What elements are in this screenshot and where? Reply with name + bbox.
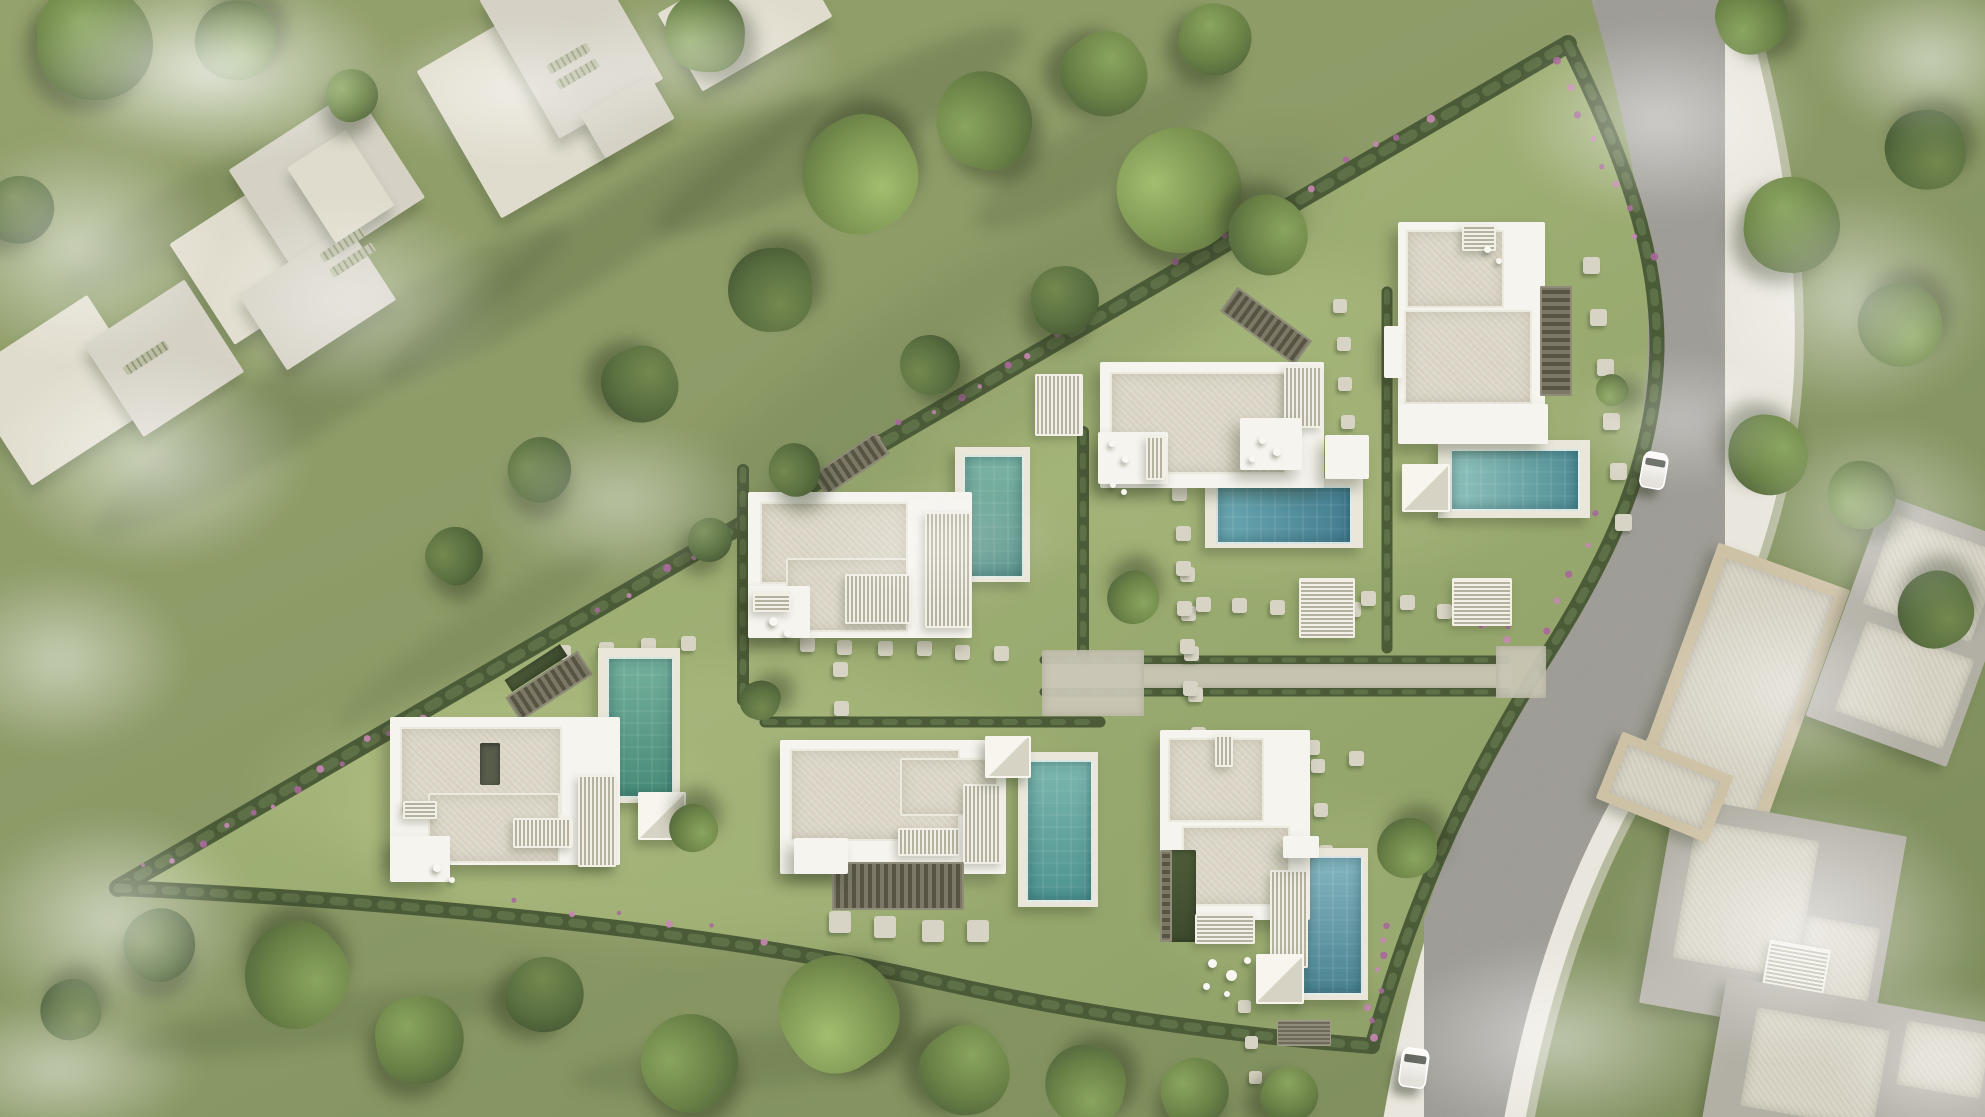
stepping-stone bbox=[1603, 413, 1620, 430]
bougainvillea-flowers bbox=[761, 939, 768, 946]
villa-1-part-6 bbox=[1540, 286, 1572, 396]
outdoor-furniture bbox=[1226, 970, 1237, 981]
bougainvillea-flowers bbox=[1554, 597, 1561, 604]
pool-3 bbox=[963, 455, 1024, 578]
villa-4-part-7 bbox=[403, 801, 437, 819]
paved-path bbox=[1042, 650, 1144, 716]
bougainvillea-flowers bbox=[569, 911, 575, 917]
bougainvillea-flowers bbox=[709, 923, 713, 927]
villa-4-part-6 bbox=[390, 836, 450, 882]
outdoor-furniture bbox=[1109, 441, 1115, 447]
aerial-site-plan-rendering bbox=[0, 0, 1985, 1117]
stepping-stone bbox=[681, 636, 696, 651]
bougainvillea-flowers bbox=[271, 804, 276, 809]
stepping-stone bbox=[1400, 595, 1415, 610]
villa-6-part-10 bbox=[1256, 954, 1304, 1004]
villa-5-part-7 bbox=[985, 736, 1031, 778]
stepping-stone bbox=[994, 646, 1009, 661]
stepping-stone bbox=[874, 916, 896, 938]
villa-5-part-8 bbox=[794, 838, 848, 874]
bougainvillea-flowers bbox=[1592, 510, 1598, 516]
stepping-stone bbox=[1245, 1036, 1258, 1049]
bougainvillea-flowers bbox=[340, 761, 345, 766]
outdoor-furniture bbox=[1110, 482, 1116, 488]
outdoor-furniture bbox=[1121, 489, 1127, 495]
bougainvillea-flowers bbox=[627, 593, 632, 598]
outdoor-furniture bbox=[1203, 983, 1210, 990]
bougainvillea-flowers bbox=[141, 863, 145, 867]
stepping-stone bbox=[1180, 639, 1195, 654]
bougainvillea-flowers bbox=[1369, 1018, 1375, 1024]
bougainvillea-flowers bbox=[978, 384, 982, 388]
stepping-stone bbox=[917, 641, 932, 656]
stepping-stone bbox=[1437, 604, 1452, 619]
bougainvillea-flowers bbox=[364, 735, 371, 742]
villa-5-part-4 bbox=[898, 828, 960, 856]
bougainvillea-flowers bbox=[200, 841, 207, 848]
villa-6-part-11 bbox=[1277, 1020, 1331, 1046]
car-2 bbox=[1397, 1046, 1430, 1090]
villa-1-part-8 bbox=[1402, 464, 1450, 512]
stepping-stone bbox=[1176, 561, 1191, 576]
paved-path bbox=[1496, 646, 1546, 698]
bougainvillea-flowers bbox=[1383, 923, 1389, 929]
stepping-stone bbox=[922, 920, 944, 942]
stepping-stone bbox=[1610, 463, 1627, 480]
stepping-stone bbox=[1183, 681, 1198, 696]
outdoor-furniture bbox=[1484, 246, 1491, 253]
outdoor-furniture bbox=[433, 864, 441, 872]
stepping-stone bbox=[829, 911, 851, 933]
outdoor-furniture bbox=[1259, 437, 1266, 444]
bougainvillea-flowers bbox=[1393, 135, 1399, 141]
outdoor-furniture bbox=[1496, 258, 1502, 264]
stepping-stone bbox=[837, 640, 852, 655]
outdoor-furniture bbox=[449, 877, 455, 883]
stepping-stone bbox=[1615, 514, 1632, 531]
villa-1-part-4 bbox=[1404, 310, 1532, 404]
bougainvillea-flowers bbox=[1565, 571, 1572, 578]
stepping-stone bbox=[1337, 337, 1351, 351]
villa-1-part-5 bbox=[1462, 225, 1496, 251]
outdoor-furniture bbox=[1244, 957, 1251, 964]
villa-1-part-2 bbox=[1384, 326, 1402, 378]
bougainvillea-flowers bbox=[617, 911, 621, 915]
stepping-stone bbox=[1311, 759, 1325, 773]
villa-6-part-4 bbox=[1215, 735, 1233, 767]
bougainvillea-flowers bbox=[1379, 988, 1385, 994]
bougainvillea-flowers bbox=[294, 786, 301, 793]
bougainvillea-flowers bbox=[169, 858, 175, 864]
villa-3-part-4 bbox=[845, 574, 911, 624]
bougainvillea-flowers bbox=[1586, 543, 1592, 549]
bougainvillea-flowers bbox=[896, 419, 902, 425]
villa-4-part-5 bbox=[513, 818, 573, 848]
villa-4-part-8 bbox=[480, 743, 500, 785]
bougainvillea-flowers bbox=[1380, 952, 1387, 959]
bougainvillea-flowers bbox=[1568, 84, 1575, 91]
bougainvillea-flowers bbox=[251, 810, 257, 816]
stepping-stone bbox=[1177, 601, 1192, 616]
villa-4-part-4 bbox=[578, 775, 616, 867]
bougainvillea-flowers bbox=[1370, 1034, 1378, 1042]
bougainvillea-flowers bbox=[1599, 164, 1604, 169]
stepping-stone bbox=[1270, 600, 1285, 615]
stepping-stone bbox=[1361, 591, 1376, 606]
bougainvillea-flowers bbox=[663, 564, 671, 572]
pergola-4-part-1 bbox=[1452, 578, 1512, 626]
bougainvillea-flowers bbox=[1375, 967, 1380, 972]
bougainvillea-flowers bbox=[1627, 205, 1633, 211]
pergola-1-part-1 bbox=[1035, 374, 1083, 436]
outdoor-furniture bbox=[769, 617, 778, 626]
stepping-stone bbox=[1583, 257, 1600, 274]
pool-6 bbox=[1302, 856, 1363, 995]
villa-2-part-4 bbox=[1240, 418, 1302, 470]
stepping-stone bbox=[1333, 299, 1347, 313]
stepping-stone bbox=[878, 641, 893, 656]
bougainvillea-flowers bbox=[316, 765, 324, 773]
stepping-stone bbox=[833, 662, 848, 677]
bougainvillea-flowers bbox=[1024, 353, 1030, 359]
villa-3-part-7 bbox=[753, 592, 791, 612]
bougainvillea-flowers bbox=[595, 607, 600, 612]
bougainvillea-flowers bbox=[932, 410, 936, 414]
bougainvillea-flowers bbox=[666, 920, 673, 927]
bougainvillea-flowers bbox=[1373, 141, 1379, 147]
bougainvillea-flowers bbox=[958, 394, 965, 401]
villa-1-part-7 bbox=[1398, 404, 1548, 444]
stepping-stone bbox=[1314, 803, 1328, 817]
pergola-3-part-1 bbox=[1299, 578, 1355, 638]
pool-1 bbox=[1450, 449, 1580, 511]
bougainvillea-flowers bbox=[1632, 234, 1637, 239]
outdoor-furniture bbox=[1208, 959, 1217, 968]
villa-5-part-5 bbox=[963, 784, 1003, 864]
stepping-stone bbox=[967, 920, 989, 942]
stepping-stone bbox=[1232, 598, 1247, 613]
stepping-stone bbox=[1238, 1000, 1251, 1013]
bougainvillea-flowers bbox=[1553, 57, 1561, 65]
stepping-stone bbox=[1338, 377, 1352, 391]
stepping-stone bbox=[800, 637, 815, 652]
bougainvillea-flowers bbox=[1380, 937, 1386, 943]
villa-3-part-5 bbox=[925, 512, 971, 628]
bougainvillea-flowers bbox=[1574, 111, 1581, 118]
bougainvillea-flowers bbox=[1005, 362, 1012, 369]
car-1-windshield bbox=[1645, 457, 1666, 468]
bougainvillea-flowers bbox=[1613, 181, 1620, 188]
stepping-stone bbox=[955, 645, 970, 660]
outdoor-furniture bbox=[1249, 456, 1255, 462]
bougainvillea-flowers bbox=[1427, 115, 1435, 123]
stepping-stone bbox=[1196, 597, 1211, 612]
bougainvillea-flowers bbox=[1364, 1004, 1372, 1012]
outdoor-furniture bbox=[1224, 991, 1230, 997]
pergola-2-part-2 bbox=[1146, 436, 1166, 480]
villa-2-part-5 bbox=[1325, 435, 1369, 479]
bougainvillea-flowers bbox=[1503, 636, 1510, 643]
bougainvillea-flowers bbox=[1590, 136, 1596, 142]
bougainvillea-flowers bbox=[1172, 258, 1179, 265]
outdoor-furniture bbox=[1273, 448, 1281, 456]
villa-6-part-6 bbox=[1160, 850, 1172, 942]
tree bbox=[37, 0, 153, 100]
pool-5 bbox=[1026, 760, 1093, 902]
stepping-stone bbox=[1341, 415, 1355, 429]
bougainvillea-flowers bbox=[1308, 185, 1315, 192]
bougainvillea-flowers bbox=[1651, 253, 1659, 261]
outdoor-furniture bbox=[1122, 456, 1129, 463]
car-2-windshield bbox=[1404, 1054, 1426, 1065]
stepping-stone bbox=[1176, 526, 1191, 541]
villa-6-part-8 bbox=[1195, 914, 1255, 944]
stepping-stone bbox=[1349, 751, 1364, 766]
bougainvillea-flowers bbox=[1543, 628, 1550, 635]
outdoor-furniture bbox=[784, 630, 791, 637]
villa-5-part-6 bbox=[832, 862, 964, 910]
stepping-stone bbox=[834, 701, 849, 716]
pool-2 bbox=[1216, 486, 1352, 544]
villa-6-part-9 bbox=[1283, 836, 1319, 858]
bougainvillea-flowers bbox=[224, 823, 229, 828]
bougainvillea-flowers bbox=[1343, 156, 1349, 162]
stepping-stone bbox=[1249, 1071, 1262, 1084]
stepping-stone bbox=[1590, 309, 1607, 326]
bougainvillea-flowers bbox=[511, 898, 516, 903]
